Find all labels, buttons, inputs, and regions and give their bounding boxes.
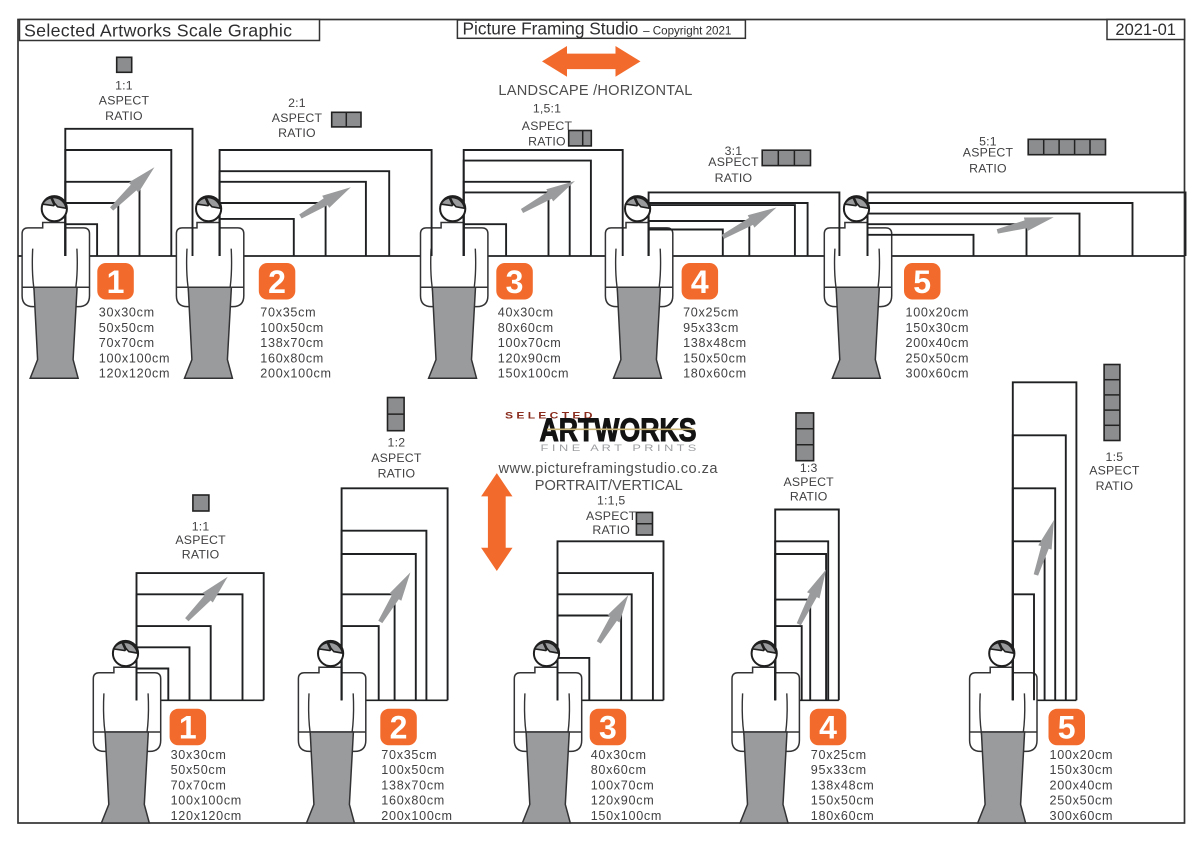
svg-text:RATIO: RATIO <box>1096 479 1134 493</box>
svg-text:80x60cm: 80x60cm <box>591 763 647 777</box>
svg-text:100x100cm: 100x100cm <box>171 794 242 808</box>
svg-text:ASPECT: ASPECT <box>272 111 323 125</box>
svg-text:3: 3 <box>599 710 617 746</box>
svg-text:180x60cm: 180x60cm <box>811 809 875 823</box>
svg-text:100x100cm: 100x100cm <box>99 351 170 365</box>
svg-text:1:1,5: 1:1,5 <box>597 493 625 507</box>
svg-text:1: 1 <box>179 710 197 746</box>
svg-text:4: 4 <box>819 710 837 746</box>
svg-text:200x100cm: 200x100cm <box>260 367 331 381</box>
svg-text:www.pictureframingstudio.co.za: www.pictureframingstudio.co.za <box>498 461 719 477</box>
svg-text:ASPECT: ASPECT <box>708 155 759 169</box>
svg-text:1,5:1: 1,5:1 <box>533 102 561 116</box>
svg-text:95x33cm: 95x33cm <box>811 763 867 777</box>
svg-text:70x35cm: 70x35cm <box>260 306 316 320</box>
svg-text:138x70cm: 138x70cm <box>381 778 445 792</box>
svg-text:120x120cm: 120x120cm <box>99 367 170 381</box>
svg-text:LANDSCAPE /HORIZONTAL: LANDSCAPE /HORIZONTAL <box>498 83 692 99</box>
svg-text:100x70cm: 100x70cm <box>591 778 655 792</box>
svg-text:4: 4 <box>691 264 709 300</box>
svg-text:2021-01: 2021-01 <box>1115 21 1176 39</box>
svg-text:200x100cm: 200x100cm <box>381 809 452 823</box>
svg-text:300x60cm: 300x60cm <box>906 367 970 381</box>
svg-text:ASPECT: ASPECT <box>522 119 573 133</box>
svg-text:2:1: 2:1 <box>288 96 306 110</box>
svg-text:1:2: 1:2 <box>388 435 406 449</box>
svg-text:95x33cm: 95x33cm <box>683 321 739 335</box>
svg-text:40x30cm: 40x30cm <box>498 306 554 320</box>
svg-text:RATIO: RATIO <box>969 161 1007 175</box>
svg-text:50x50cm: 50x50cm <box>171 763 227 777</box>
svg-text:150x50cm: 150x50cm <box>683 351 747 365</box>
svg-text:200x40cm: 200x40cm <box>906 336 970 350</box>
svg-text:150x30cm: 150x30cm <box>1050 763 1114 777</box>
svg-text:PORTRAIT/VERTICAL: PORTRAIT/VERTICAL <box>535 478 683 494</box>
svg-text:150x100cm: 150x100cm <box>591 809 662 823</box>
svg-text:70x25cm: 70x25cm <box>811 748 867 762</box>
svg-text:138x48cm: 138x48cm <box>811 778 875 792</box>
svg-text:80x60cm: 80x60cm <box>498 321 554 335</box>
svg-text:100x20cm: 100x20cm <box>906 306 970 320</box>
svg-text:ASPECT: ASPECT <box>175 533 226 547</box>
svg-text:250x50cm: 250x50cm <box>1050 794 1114 808</box>
svg-text:150x30cm: 150x30cm <box>906 321 970 335</box>
svg-text:100x20cm: 100x20cm <box>1050 748 1114 762</box>
svg-text:F I N E A R T P R I N T S: F I N E A R T P R I N T S <box>541 443 697 454</box>
svg-text:ASPECT: ASPECT <box>963 146 1014 160</box>
svg-text:250x50cm: 250x50cm <box>906 351 970 365</box>
svg-text:RATIO: RATIO <box>378 466 416 480</box>
svg-text:160x80cm: 160x80cm <box>260 351 324 365</box>
svg-text:1:5: 1:5 <box>1106 450 1124 464</box>
svg-text:70x70cm: 70x70cm <box>171 778 227 792</box>
svg-text:150x50cm: 150x50cm <box>811 794 875 808</box>
svg-text:70x25cm: 70x25cm <box>683 306 739 320</box>
svg-text:ASPECT: ASPECT <box>371 451 422 465</box>
svg-text:160x80cm: 160x80cm <box>381 794 445 808</box>
svg-text:150x100cm: 150x100cm <box>498 367 569 381</box>
svg-text:RATIO: RATIO <box>182 548 220 562</box>
svg-text:30x30cm: 30x30cm <box>99 306 155 320</box>
svg-text:ASPECT: ASPECT <box>1089 464 1140 478</box>
svg-text:2: 2 <box>268 264 286 300</box>
svg-text:180x60cm: 180x60cm <box>683 367 747 381</box>
svg-text:100x70cm: 100x70cm <box>498 336 562 350</box>
svg-text:RATIO: RATIO <box>790 490 828 504</box>
svg-text:100x50cm: 100x50cm <box>381 763 445 777</box>
svg-text:300x60cm: 300x60cm <box>1050 809 1114 823</box>
svg-text:ASPECT: ASPECT <box>783 475 834 489</box>
svg-text:RATIO: RATIO <box>592 523 630 537</box>
svg-text:RATIO: RATIO <box>105 109 143 123</box>
svg-text:5: 5 <box>913 264 931 300</box>
svg-text:120x120cm: 120x120cm <box>171 809 242 823</box>
svg-text:138x48cm: 138x48cm <box>683 336 747 350</box>
svg-text:RATIO: RATIO <box>278 126 316 140</box>
svg-text:1:3: 1:3 <box>800 461 818 475</box>
svg-text:ASPECT: ASPECT <box>586 509 637 523</box>
svg-text:120x90cm: 120x90cm <box>591 794 655 808</box>
svg-text:1: 1 <box>107 264 125 300</box>
svg-text:Selected Artworks Scale Graphi: Selected Artworks Scale Graphic <box>24 20 292 40</box>
svg-text:138x70cm: 138x70cm <box>260 336 324 350</box>
svg-text:1:1: 1:1 <box>115 79 133 93</box>
svg-text:5: 5 <box>1058 710 1076 746</box>
svg-text:100x50cm: 100x50cm <box>260 321 324 335</box>
svg-text:200x40cm: 200x40cm <box>1050 778 1114 792</box>
svg-text:RATIO: RATIO <box>715 171 753 185</box>
svg-text:1:1: 1:1 <box>192 520 210 534</box>
svg-text:2: 2 <box>390 710 408 746</box>
svg-text:70x70cm: 70x70cm <box>99 336 155 350</box>
svg-text:ASPECT: ASPECT <box>99 94 150 108</box>
svg-text:40x30cm: 40x30cm <box>591 748 647 762</box>
svg-text:RATIO: RATIO <box>528 135 566 149</box>
svg-text:3: 3 <box>506 264 524 300</box>
svg-text:70x35cm: 70x35cm <box>381 748 437 762</box>
svg-text:30x30cm: 30x30cm <box>171 748 227 762</box>
svg-text:120x90cm: 120x90cm <box>498 351 562 365</box>
svg-text:50x50cm: 50x50cm <box>99 321 155 335</box>
